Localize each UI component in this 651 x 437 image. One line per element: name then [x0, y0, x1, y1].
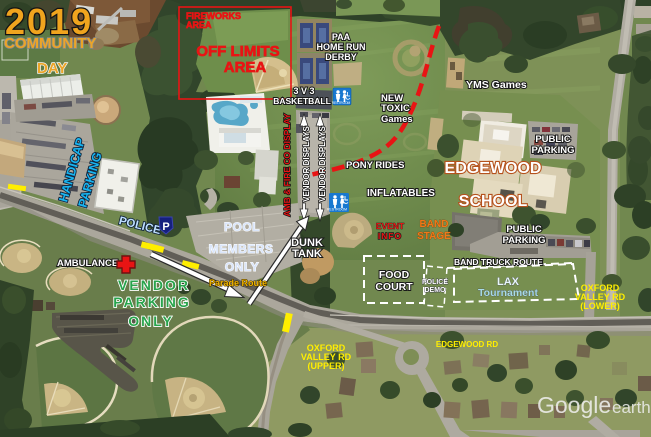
- svg-text:DAY: DAY: [37, 60, 67, 77]
- svg-text:PONY RIDES: PONY RIDES: [346, 160, 404, 171]
- svg-text:BAND: BAND: [420, 219, 449, 230]
- svg-text:PARKING: PARKING: [113, 294, 191, 310]
- svg-text:BASKETBALL: BASKETBALL: [273, 96, 331, 106]
- svg-text:RESTROOM: RESTROOM: [332, 101, 351, 105]
- svg-text:(UPPER): (UPPER): [307, 361, 344, 371]
- svg-text:3 V 3: 3 V 3: [293, 86, 314, 96]
- svg-text:POLICE: POLICE: [422, 279, 448, 286]
- svg-text:PUBLIC: PUBLIC: [506, 224, 542, 235]
- svg-text:INFO: INFO: [378, 231, 402, 241]
- svg-text:SCHOOL: SCHOOL: [459, 193, 528, 210]
- svg-text:OFF LIMITS: OFF LIMITS: [196, 43, 279, 60]
- svg-text:DEMO: DEMO: [425, 287, 447, 294]
- svg-text:EDGEWOOD: EDGEWOOD: [445, 160, 542, 177]
- svg-text:AREA: AREA: [186, 20, 212, 30]
- svg-text:Games: Games: [381, 114, 413, 125]
- svg-text:EVENT: EVENT: [376, 221, 405, 231]
- svg-text:MEMBERS: MEMBERS: [209, 242, 274, 256]
- svg-text:YMS Games: YMS Games: [466, 79, 527, 91]
- svg-text:RESTROOM: RESTROOM: [327, 208, 347, 212]
- svg-text:VENDOR DISPLAYS: VENDOR DISPLAYS: [302, 125, 311, 201]
- svg-text:(LOWER): (LOWER): [580, 301, 620, 311]
- svg-text:PUBLIC: PUBLIC: [535, 134, 571, 145]
- svg-text:Google: Google: [537, 392, 611, 418]
- svg-text:STAGE: STAGE: [417, 231, 451, 242]
- svg-text:INFLATABLES: INFLATABLES: [367, 188, 435, 199]
- svg-text:PAA: PAA: [332, 32, 351, 42]
- svg-text:PARKING: PARKING: [502, 235, 545, 246]
- svg-text:Parade Route: Parade Route: [209, 278, 267, 288]
- svg-text:HOME RUN: HOME RUN: [317, 42, 366, 52]
- svg-text:AMBULANCE: AMBULANCE: [57, 258, 118, 269]
- svg-text:AMB & FIRE CO DISPLAY: AMB & FIRE CO DISPLAY: [282, 113, 292, 216]
- svg-text:POOL: POOL: [224, 220, 260, 234]
- svg-text:EDGEWOOD RD: EDGEWOOD RD: [436, 340, 498, 349]
- svg-text:ONLY: ONLY: [128, 313, 174, 329]
- svg-text:TOXIC: TOXIC: [381, 103, 410, 114]
- svg-text:P: P: [162, 221, 169, 233]
- svg-text:VENDOR: VENDOR: [118, 277, 190, 293]
- svg-text:COURT: COURT: [375, 281, 413, 293]
- svg-text:AREA: AREA: [224, 59, 267, 76]
- svg-text:VENDOR DISPLAYS: VENDOR DISPLAYS: [318, 125, 327, 201]
- svg-text:BAND TRUCK ROUTE: BAND TRUCK ROUTE: [454, 257, 543, 267]
- svg-text:PARKING: PARKING: [531, 145, 574, 156]
- svg-text:COMMUNITY: COMMUNITY: [4, 35, 97, 52]
- svg-text:Tournament: Tournament: [478, 287, 538, 299]
- svg-text:FOOD: FOOD: [379, 269, 410, 281]
- svg-text:earth: earth: [612, 398, 651, 417]
- svg-text:DERBY: DERBY: [325, 52, 357, 62]
- svg-text:ONLY: ONLY: [225, 260, 259, 274]
- svg-text:TANK: TANK: [292, 248, 322, 260]
